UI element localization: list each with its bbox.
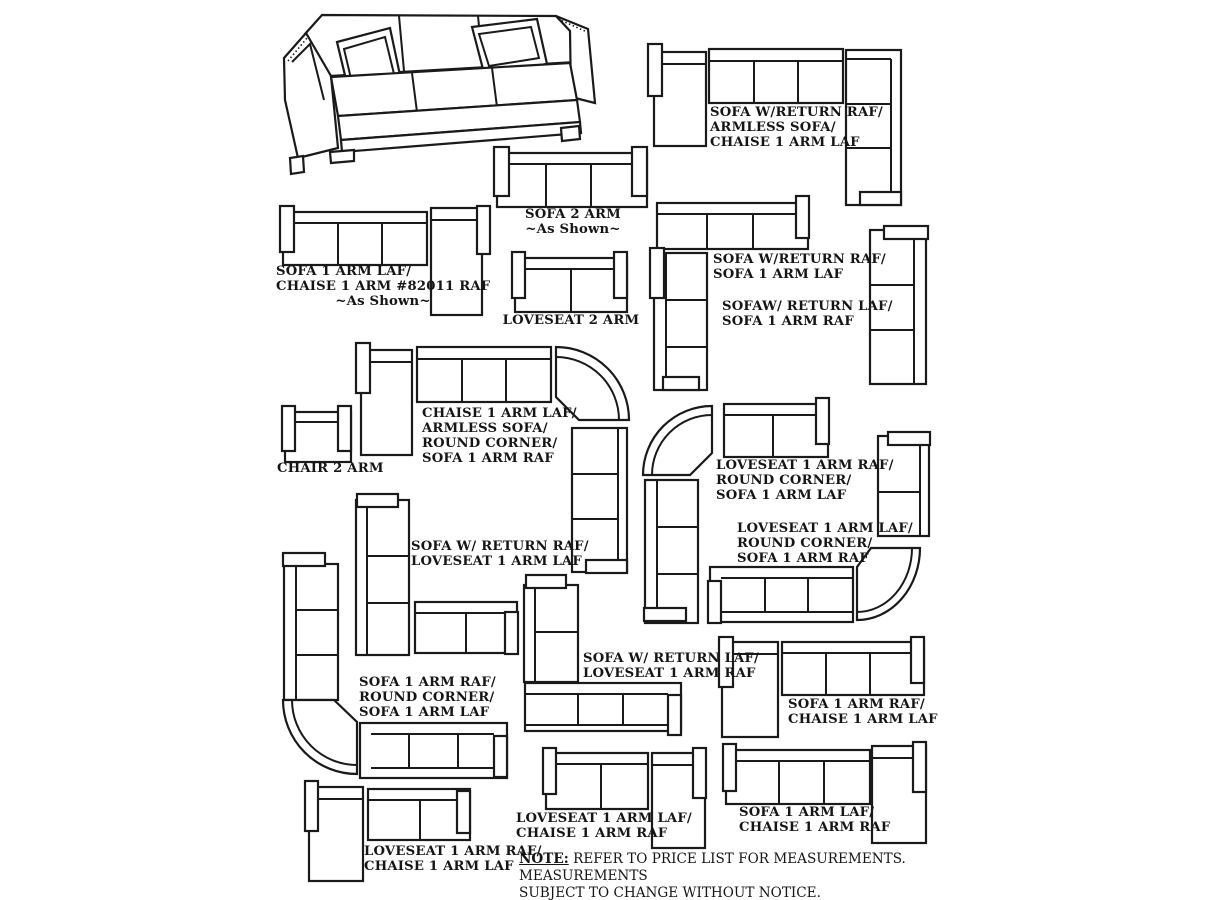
config-label-9: LOVESEAT 1 ARM RAF/ ROUND CORNER/ SOFA 1… — [716, 458, 894, 503]
label-line: SOFA 1 ARM RAF — [422, 451, 577, 466]
config-label-17: LOVESEAT 1 ARM RAF/ CHAISE 1 ARM LAF — [364, 844, 542, 874]
label-line: LOVESEAT 1 ARM LAF/ — [516, 811, 692, 826]
config-sofa-return-raf-loveseat-laf — [356, 494, 518, 655]
label-line: SOFA 1 ARM LAF/ — [739, 805, 890, 820]
config-label-10: LOVESEAT 1 ARM LAF/ ROUND CORNER/ SOFA 1… — [737, 521, 913, 566]
label-line: LOVESEAT 1 ARM RAF/ — [364, 844, 542, 859]
note-text: REFER TO PRICE LIST FOR MEASUREMENTS. ME… — [519, 851, 906, 884]
config-label-4: LOVESEAT 2 ARM — [496, 313, 646, 328]
config-label-2: SOFA 2 ARM ~As Shown~ — [498, 207, 648, 237]
label-line: CHAISE 1 ARM LAF — [710, 135, 883, 150]
sofa-illustration — [284, 15, 595, 174]
label-line: SOFA 1 ARM LAF — [716, 488, 894, 503]
label-line: CHAIR 2 ARM — [277, 461, 384, 476]
label-line: CHAISE 1 ARM #82011 RAF — [276, 279, 490, 294]
config-label-11: SOFA W/ RETURN RAF/ LOVESEAT 1 ARM LAF — [411, 539, 589, 569]
config-loveseat-2-arm — [512, 252, 627, 312]
config-chair-2-arm — [282, 406, 351, 462]
note-line: SUBJECT TO CHANGE WITHOUT NOTICE. — [519, 885, 949, 900]
label-line: SOFA 1 ARM LAF — [713, 267, 886, 282]
label-line: ARMLESS SOFA/ — [422, 421, 577, 436]
config-label-6: SOFAW/ RETURN LAF/ SOFA 1 ARM RAF — [722, 299, 893, 329]
catalog-page: SOFA W/RETURN RAF/ ARMLESS SOFA/ CHAISE … — [0, 0, 1220, 900]
note-text: SUBJECT TO CHANGE WITHOUT NOTICE. — [519, 885, 821, 900]
label-line: ~As Shown~ — [498, 222, 648, 237]
label-line: LOVESEAT 1 ARM RAF/ — [716, 458, 894, 473]
label-line: SOFA 2 ARM — [498, 207, 648, 222]
label-line: ~As Shown~ — [276, 294, 490, 309]
label-line: ROUND CORNER/ — [422, 436, 577, 451]
config-label-8: CHAIR 2 ARM — [277, 461, 384, 476]
sectional-configuration-diagram — [0, 0, 1220, 900]
label-line: CHAISE 1 ARM LAF — [364, 859, 542, 874]
label-line: SOFA 1 ARM RAF — [737, 551, 913, 566]
config-sofa-2-arm — [494, 147, 647, 207]
label-line: SOFA W/ RETURN LAF/ — [583, 651, 759, 666]
label-line: ROUND CORNER/ — [737, 536, 913, 551]
label-line: CHAISE 1 ARM LAF/ — [422, 406, 577, 421]
measurements-note: NOTE: REFER TO PRICE LIST FOR MEASUREMEN… — [519, 851, 949, 900]
label-line: LOVESEAT 2 ARM — [496, 313, 646, 328]
label-line: SOFA 1 ARM LAF/ — [276, 264, 490, 279]
label-line: SOFA W/ RETURN RAF/ — [411, 539, 589, 554]
config-sofa-return-raf-sofa-laf — [650, 196, 809, 390]
label-line: SOFA 1 ARM RAF/ — [788, 697, 938, 712]
label-line: SOFAW/ RETURN LAF/ — [722, 299, 893, 314]
label-line: ARMLESS SOFA/ — [710, 120, 883, 135]
config-label-13: SOFA 1 ARM RAF/ ROUND CORNER/ SOFA 1 ARM… — [359, 675, 496, 720]
label-line: CHAISE 1 ARM RAF — [516, 826, 692, 841]
config-label-5: SOFA W/RETURN RAF/ SOFA 1 ARM LAF — [713, 252, 886, 282]
note-label: NOTE: — [519, 851, 569, 867]
config-label-15: SOFA 1 ARM LAF/ CHAISE 1 ARM RAF — [739, 805, 890, 835]
label-line: ROUND CORNER/ — [716, 473, 894, 488]
config-label-3: SOFA 1 ARM LAF/ CHAISE 1 ARM #82011 RAF … — [276, 264, 490, 309]
config-label-12: SOFA W/ RETURN LAF/ LOVESEAT 1 ARM RAF — [583, 651, 759, 681]
config-label-16: LOVESEAT 1 ARM LAF/ CHAISE 1 ARM RAF — [516, 811, 692, 841]
label-line: ROUND CORNER/ — [359, 690, 496, 705]
config-label-1: SOFA W/RETURN RAF/ ARMLESS SOFA/ CHAISE … — [710, 105, 883, 150]
label-line: SOFA W/RETURN RAF/ — [710, 105, 883, 120]
config-label-14: SOFA 1 ARM RAF/ CHAISE 1 ARM LAF — [788, 697, 938, 727]
note-line: NOTE: REFER TO PRICE LIST FOR MEASUREMEN… — [519, 851, 949, 885]
label-line: CHAISE 1 ARM LAF — [788, 712, 938, 727]
config-label-7: CHAISE 1 ARM LAF/ ARMLESS SOFA/ ROUND CO… — [422, 406, 577, 466]
label-line: SOFA 1 ARM RAF/ — [359, 675, 496, 690]
label-line: SOFA W/RETURN RAF/ — [713, 252, 886, 267]
label-line: SOFA 1 ARM LAF — [359, 705, 496, 720]
label-line: LOVESEAT 1 ARM LAF — [411, 554, 589, 569]
label-line: CHAISE 1 ARM RAF — [739, 820, 890, 835]
label-line: LOVESEAT 1 ARM LAF/ — [737, 521, 913, 536]
label-line: SOFA 1 ARM RAF — [722, 314, 893, 329]
label-line: LOVESEAT 1 ARM RAF — [583, 666, 759, 681]
